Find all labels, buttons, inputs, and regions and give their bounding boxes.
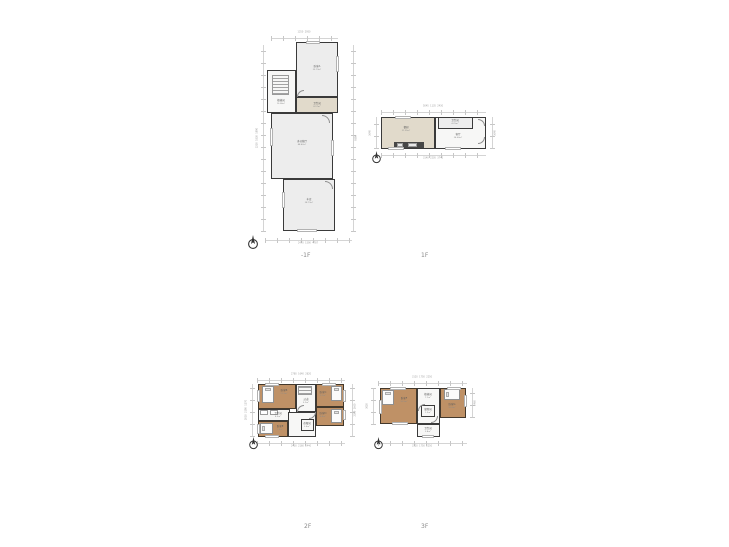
room-label: 衣帽间2.4m²: [303, 422, 311, 428]
north-compass-icon: [371, 151, 382, 164]
bed-icon: [331, 386, 342, 401]
bed-icon: [331, 409, 342, 423]
dimension-line: [261, 45, 266, 232]
dimension-line: [374, 117, 379, 149]
room-label: 卧室C9.7m²: [320, 391, 327, 397]
room-label: 卧室E7.6m²: [277, 425, 284, 431]
dimension-line: [381, 110, 486, 115]
window-marker: [445, 147, 461, 150]
window-marker: [392, 422, 408, 425]
room-label: 卧室B11.2m²: [280, 389, 287, 395]
room-label: 卫生间4.3m²: [274, 412, 282, 418]
dimension-text: 3640: [494, 130, 497, 136]
north-compass-icon: [373, 437, 384, 450]
dimension-text: 3120 1750 2250: [412, 445, 432, 448]
window-marker: [336, 56, 339, 72]
window-marker: [422, 435, 434, 438]
dimension-text: 2780 1640 2620: [291, 373, 311, 376]
window-marker: [464, 395, 467, 407]
room-label: 楼梯间7.1m²: [424, 393, 432, 399]
room-label: 储物间1.9m²: [424, 408, 432, 414]
dimension-text: 2430 2160 2440: [291, 445, 311, 448]
floor-label-f2: 2F: [304, 523, 311, 530]
floor-label-b1: -1F: [301, 252, 310, 259]
north-compass-icon: [247, 235, 259, 250]
room-label: 卫生间8.97m²: [313, 102, 321, 108]
window-marker: [388, 147, 404, 150]
window-marker: [343, 390, 346, 402]
room-label: 楼梯间10.06m²: [277, 99, 285, 105]
window-marker: [390, 387, 406, 390]
window-marker: [447, 387, 461, 390]
dimension-text: 2010 2190 1270: [245, 400, 248, 420]
dimension-text: 9590: [355, 135, 358, 141]
dimension-text: 3020: [366, 403, 369, 409]
stairs-icon: [298, 386, 312, 395]
bed-icon: [382, 390, 394, 405]
window-marker: [331, 140, 334, 156]
bed-icon: [444, 389, 460, 400]
window-marker: [257, 424, 260, 434]
room-label: 卧室F16.5m²: [400, 397, 407, 403]
window-marker: [395, 116, 411, 119]
window-marker: [282, 192, 285, 208]
north-compass-icon: [248, 437, 259, 450]
window-marker: [265, 435, 279, 438]
bed-icon: [260, 423, 273, 434]
floor-plan-page: 卧室A25.73m² 楼梯间10.06m² 卫生间8.97m² 多功能厅48.4…: [0, 0, 729, 547]
dimension-text: 3640: [369, 130, 372, 136]
window-marker: [379, 400, 382, 414]
dimension-text: 5045 1135 2430: [423, 105, 443, 108]
dimension-text: 2460: [474, 400, 477, 406]
room-label: 多功能厅48.42m²: [297, 140, 307, 146]
room-label: 卫生间3.8m²: [424, 427, 432, 433]
window-marker: [322, 383, 336, 386]
bed-icon: [262, 386, 274, 403]
room-label: 卫生间4.25m²: [451, 119, 459, 125]
dimension-text: 3140 2205 3740: [423, 157, 443, 160]
room-label: 卧室G10.6m²: [448, 403, 455, 409]
window-marker: [270, 128, 273, 146]
dimension-text: 1250 2950: [298, 31, 311, 34]
room-label: 卧室D8.8m²: [320, 412, 327, 418]
floor-label-f3: 3F: [421, 523, 428, 530]
dimension-text: 2470 1590 4787: [298, 242, 318, 245]
dimension-text: 2230 5330 1890: [256, 128, 259, 148]
dimension-line: [378, 381, 467, 386]
sink-icon: [260, 410, 268, 415]
dimension-line: [271, 36, 338, 41]
room-label: 过道5.9m²: [303, 398, 309, 404]
stairs-icon: [272, 75, 289, 95]
room-label: 客厅24.60m²: [454, 133, 462, 139]
window-marker: [257, 390, 260, 402]
room-label: 车库28.73m²: [305, 198, 313, 204]
window-marker: [265, 383, 279, 386]
dimension-text: 3120 1750 2250: [412, 376, 432, 379]
window-marker: [297, 229, 317, 232]
dimension-line: [250, 384, 255, 437]
room-label: 餐厨21.35m²: [402, 126, 410, 132]
dimension-line: [371, 388, 376, 425]
floor-label-f1: 1F: [421, 252, 428, 259]
window-marker: [306, 41, 320, 44]
room-label: 卧室A25.73m²: [313, 65, 321, 71]
window-marker: [343, 410, 346, 420]
dimension-text: 2300 1660: [354, 404, 357, 417]
